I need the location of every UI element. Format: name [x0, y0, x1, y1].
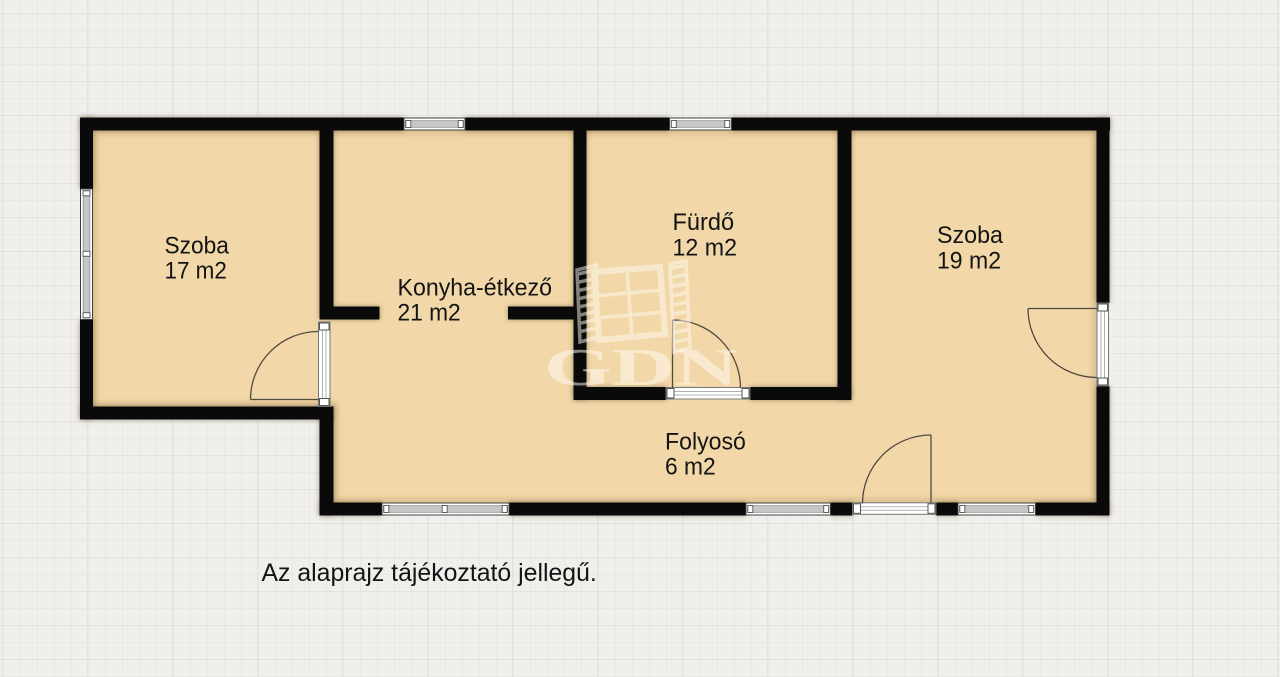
svg-text:Az alaprajz tájékoztató jelleg: Az alaprajz tájékoztató jellegű. — [262, 559, 597, 587]
svg-text:Szoba: Szoba — [165, 232, 230, 259]
svg-text:19 m2: 19 m2 — [937, 247, 1001, 274]
svg-text:Konyha-étkező: Konyha-étkező — [398, 274, 553, 301]
svg-text:12 m2: 12 m2 — [673, 234, 738, 261]
svg-text:Fürdő: Fürdő — [673, 209, 735, 236]
svg-text:Szoba: Szoba — [937, 222, 1004, 249]
svg-text:17 m2: 17 m2 — [165, 258, 227, 285]
svg-text:6 m2: 6 m2 — [665, 454, 716, 481]
svg-text:21 m2: 21 m2 — [398, 300, 461, 327]
svg-text:Folyosó: Folyosó — [665, 428, 746, 455]
svg-text:GDN: GDN — [544, 339, 738, 397]
